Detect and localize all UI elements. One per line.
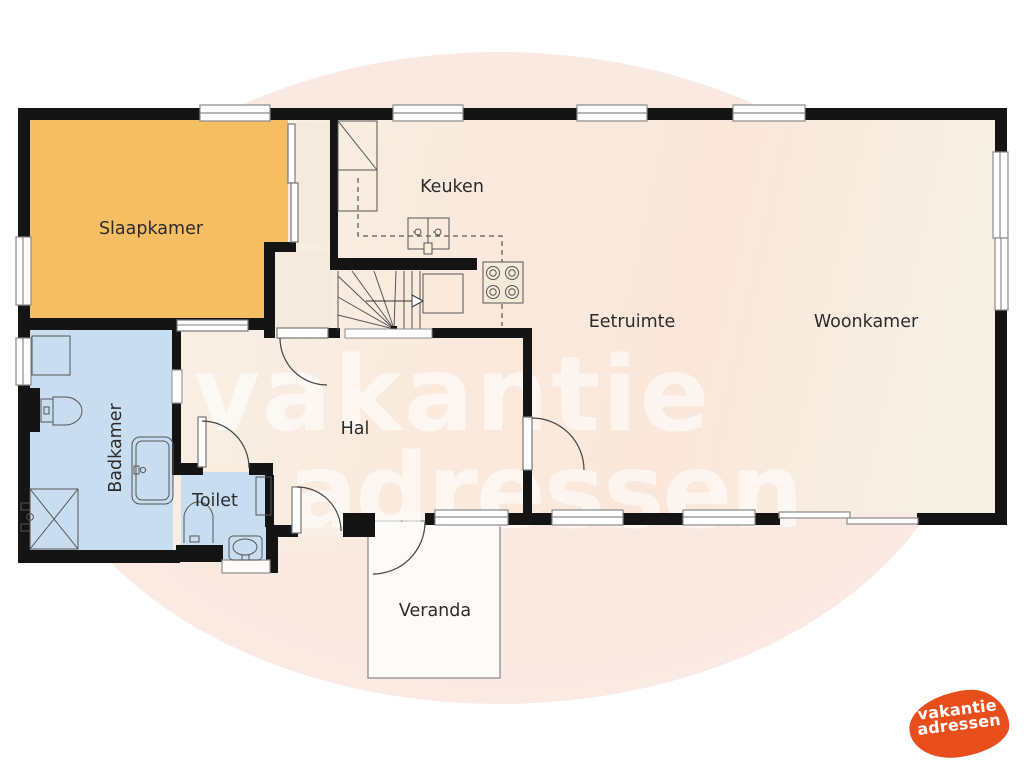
label-keuken: Keuken	[420, 177, 484, 197]
window-bottom-1	[435, 510, 508, 525]
label-veranda: Veranda	[399, 601, 471, 621]
window-top-kitchen	[393, 105, 463, 121]
window-top-living	[733, 105, 805, 121]
doorstep-outside	[222, 560, 270, 573]
floorplan-drawing: vakantie adressen	[0, 0, 1024, 768]
closet-bedroom	[295, 122, 330, 242]
vakantieadressen-logo: vakantie adressen	[903, 688, 1013, 762]
room-badkamer	[30, 330, 173, 550]
kitchen-stove	[483, 262, 523, 303]
label-hal: Hal	[341, 419, 370, 439]
label-slaapkamer: Slaapkamer	[99, 219, 204, 239]
floorplan-canvas: vakantie adressen	[0, 0, 1024, 768]
window-top-dining	[577, 105, 647, 121]
label-badkamer: Badkamer	[106, 403, 126, 493]
window-left-bathroom	[16, 338, 31, 385]
window-top-bedroom	[200, 105, 270, 121]
label-toilet: Toilet	[191, 491, 238, 511]
window-right-upper	[993, 152, 1008, 238]
window-bottom-2	[552, 510, 623, 525]
window-right-lower	[995, 238, 1008, 310]
stairs-threshold	[345, 329, 432, 338]
door-bathroom-sliding	[172, 370, 182, 403]
window-bottom-3	[683, 510, 755, 525]
closet-hall	[275, 252, 332, 330]
label-woonkamer: Woonkamer	[814, 312, 919, 332]
window-left-bedroom	[16, 237, 31, 305]
label-eetruimte: Eetruimte	[589, 312, 676, 332]
door-bedroom-sliding	[177, 320, 248, 331]
